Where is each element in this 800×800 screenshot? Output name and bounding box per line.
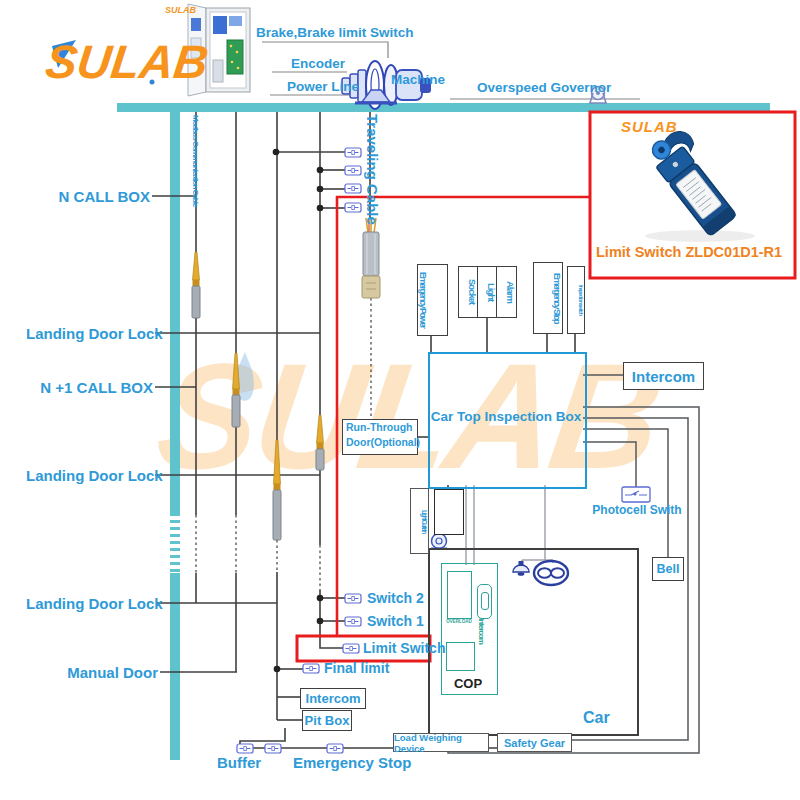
junction-dots bbox=[273, 149, 324, 673]
light-curtain-label: Light Curtain bbox=[410, 488, 429, 554]
limit-switch-label: Limit Switch bbox=[363, 640, 445, 656]
cop-intercom-label: Intercom bbox=[477, 618, 486, 666]
limit-switch-product bbox=[644, 124, 755, 242]
car-label: Car bbox=[583, 709, 610, 727]
callout-brand: SULAB bbox=[621, 118, 678, 135]
photocell-icon bbox=[622, 487, 650, 502]
cop-display bbox=[447, 571, 472, 619]
inspection-switch-port: Inspection switch bbox=[567, 266, 585, 334]
cable-connector-4 bbox=[316, 415, 324, 470]
cable-connector-3 bbox=[273, 440, 281, 540]
safety-gear-box: Safety Gear bbox=[497, 733, 572, 752]
light-curtain-device bbox=[434, 489, 464, 535]
landing-door-lock-1-label: Landing Door Lock bbox=[26, 325, 153, 342]
pit-intercom-box: Intercom bbox=[300, 688, 366, 709]
machine-label: Machine bbox=[391, 72, 445, 87]
elevator-wiring-diagram: SULAB bbox=[0, 0, 800, 800]
landing-door-lock-2-label: Landing Door Lock bbox=[26, 467, 153, 484]
modbus-cable-label: Modbus Communication Cable bbox=[191, 115, 200, 315]
light-port: Light bbox=[477, 266, 498, 318]
n-plus1-call-box-label: N +1 CALL BOX bbox=[26, 379, 153, 396]
switch-2-label: Switch 2 bbox=[367, 590, 424, 606]
buffer-label: Buffer bbox=[217, 754, 261, 771]
final-limit-label: Final limit bbox=[324, 660, 389, 676]
switch-1-label: Switch 1 bbox=[367, 613, 424, 629]
car-top-inspection-box-title: Car Top Inspection Box bbox=[430, 409, 582, 424]
cop-handset-inner bbox=[481, 592, 489, 610]
pit-box: Pit Box bbox=[302, 710, 352, 731]
intercom-box: Intercom bbox=[623, 362, 704, 390]
n-call-box-label: N CALL BOX bbox=[38, 188, 150, 205]
pit-emergency-stop-label: Emergency Stop bbox=[293, 754, 411, 771]
power-line-label: Power Line bbox=[287, 79, 359, 94]
run-through-door-line2: Door(Optional) bbox=[346, 436, 420, 448]
cable-connector-2 bbox=[232, 353, 240, 427]
socket-port: Socket bbox=[458, 266, 479, 318]
run-through-door-line1: Run-Through bbox=[346, 421, 412, 433]
cop-overload-label: OVERLOAD bbox=[442, 619, 476, 624]
cop-label: COP bbox=[445, 676, 491, 691]
bell-box: Bell bbox=[652, 557, 684, 581]
cop-button bbox=[446, 642, 475, 671]
emergency-stop-port: Emergency Stop bbox=[533, 262, 563, 334]
photocell-label: Photocell Swith bbox=[588, 503, 686, 517]
sulab-logo: SULAB bbox=[43, 34, 212, 89]
emergency-power-port: Emergency Power bbox=[417, 264, 448, 336]
cabinet-logo-caption: SULAB bbox=[165, 5, 196, 15]
load-weighing-device-box: Load Weighing Device bbox=[393, 733, 489, 752]
encoder-label: Encoder bbox=[291, 56, 345, 71]
landing-door-lock-3-label: Landing Door Lock bbox=[26, 595, 153, 612]
callout-caption: Limit Switch ZLDC01D1-R1 bbox=[596, 244, 794, 260]
light-curtain-icon bbox=[431, 534, 447, 549]
traveling-cable-label: Traveling Cable bbox=[364, 114, 381, 354]
manual-door-label: Manual Door bbox=[48, 664, 158, 681]
overspeed-governor-label: Overspeed Governor bbox=[477, 80, 611, 95]
brake-label: Brake,Brake limit Switch bbox=[256, 25, 414, 40]
alarm-port: Alarm bbox=[496, 266, 517, 318]
